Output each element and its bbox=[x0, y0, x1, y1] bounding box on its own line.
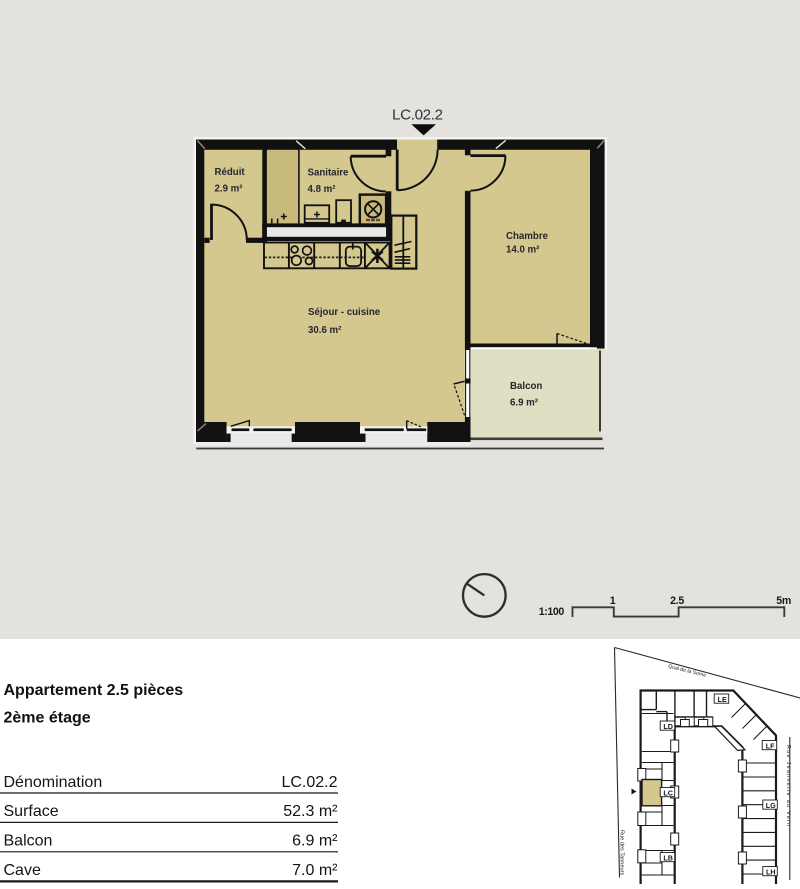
svg-text:LF: LF bbox=[766, 742, 775, 751]
svg-text:4.8 m²: 4.8 m² bbox=[308, 184, 337, 195]
svg-text:Sanitaire: Sanitaire bbox=[308, 168, 350, 179]
svg-text:2.9 m²: 2.9 m² bbox=[215, 184, 244, 195]
svg-text:LC.02.2: LC.02.2 bbox=[392, 106, 443, 123]
svg-text:LB: LB bbox=[663, 854, 673, 863]
svg-text:2.5: 2.5 bbox=[670, 595, 684, 607]
svg-text:2ème étage: 2ème étage bbox=[4, 709, 91, 726]
svg-text:LD: LD bbox=[663, 722, 673, 731]
svg-text:Surface: Surface bbox=[4, 803, 59, 820]
svg-text:LG: LG bbox=[766, 801, 776, 810]
svg-text:14.0 m²: 14.0 m² bbox=[506, 245, 540, 256]
svg-text:Cave: Cave bbox=[4, 862, 41, 879]
svg-text:Chambre: Chambre bbox=[506, 231, 549, 242]
svg-text:1:100: 1:100 bbox=[539, 606, 565, 618]
svg-text:5m: 5m bbox=[776, 595, 791, 607]
svg-text:6.9 m²: 6.9 m² bbox=[292, 833, 338, 850]
svg-text:6.9 m²: 6.9 m² bbox=[510, 398, 539, 409]
svg-text:LE: LE bbox=[718, 695, 727, 704]
svg-text:Séjour - cuisine: Séjour - cuisine bbox=[308, 307, 381, 318]
svg-text:Dénomination: Dénomination bbox=[4, 774, 103, 791]
svg-text:LH: LH bbox=[766, 868, 776, 877]
svg-text:LC: LC bbox=[663, 789, 673, 798]
svg-text:1: 1 bbox=[610, 595, 616, 607]
svg-text:Quai de la Sorne: Quai de la Sorne bbox=[668, 664, 707, 679]
svg-text:Rue Jeannette au Vern: Rue Jeannette au Vern bbox=[785, 745, 791, 827]
svg-text:30.6 m²: 30.6 m² bbox=[308, 325, 342, 336]
svg-text:Réduit: Réduit bbox=[215, 167, 246, 178]
svg-text:Rue des Tanneurs: Rue des Tanneurs bbox=[619, 830, 625, 876]
svg-text:Appartement 2.5 pièces: Appartement 2.5 pièces bbox=[4, 682, 184, 699]
svg-text:Balcon: Balcon bbox=[4, 833, 53, 850]
svg-text:52.3 m²: 52.3 m² bbox=[283, 803, 338, 820]
svg-text:Balcon: Balcon bbox=[510, 381, 542, 392]
svg-text:LC.02.2: LC.02.2 bbox=[281, 774, 337, 791]
svg-text:7.0 m²: 7.0 m² bbox=[292, 862, 338, 879]
